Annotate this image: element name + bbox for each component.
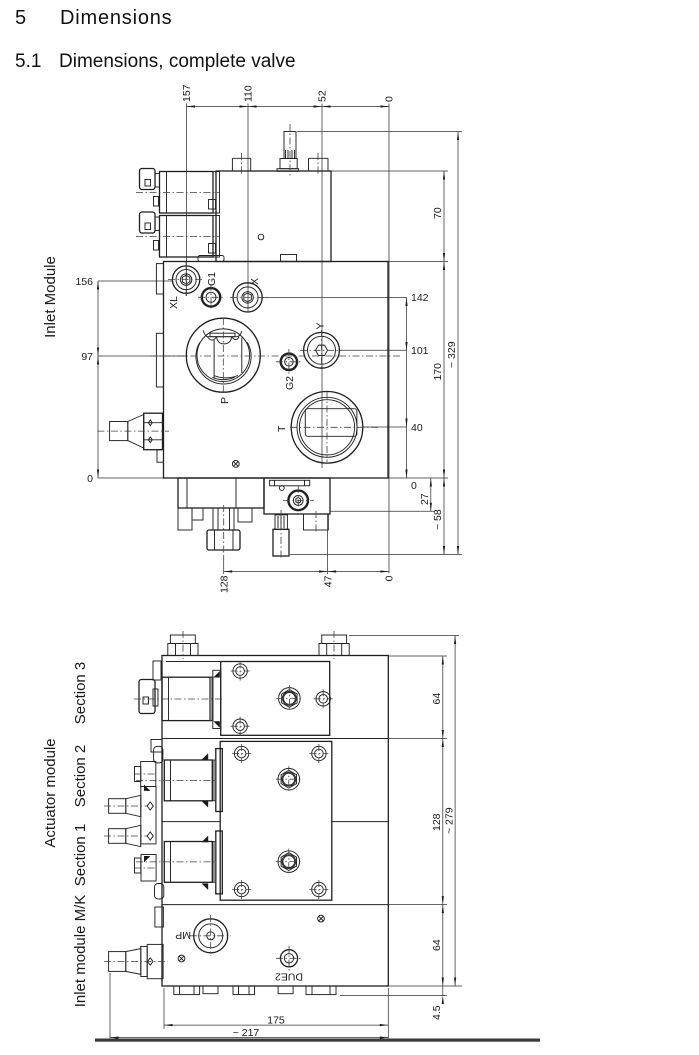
svg-text:Section 3: Section 3 bbox=[72, 662, 89, 725]
svg-text:G2: G2 bbox=[284, 376, 296, 390]
svg-text:MP: MP bbox=[175, 929, 191, 941]
svg-text:64: 64 bbox=[431, 693, 443, 705]
svg-text:~ 279: ~ 279 bbox=[444, 807, 456, 834]
svg-text:Section 2: Section 2 bbox=[72, 745, 89, 808]
svg-text:Inlet module M/K: Inlet module M/K bbox=[72, 895, 89, 1008]
svg-text:70: 70 bbox=[432, 207, 444, 219]
svg-text:170: 170 bbox=[432, 363, 444, 381]
svg-text:0: 0 bbox=[384, 575, 396, 581]
svg-text:0: 0 bbox=[384, 96, 396, 102]
svg-text:64: 64 bbox=[431, 939, 443, 951]
svg-text:52: 52 bbox=[317, 90, 329, 102]
svg-text:47: 47 bbox=[323, 575, 335, 587]
svg-text:157: 157 bbox=[181, 84, 193, 102]
svg-text:G1: G1 bbox=[206, 272, 218, 286]
svg-text:128: 128 bbox=[219, 575, 231, 593]
svg-text:Actuator module: Actuator module bbox=[42, 738, 59, 847]
svg-text:Y: Y bbox=[315, 322, 327, 329]
svg-text:0: 0 bbox=[87, 473, 93, 485]
svg-text:T: T bbox=[276, 425, 288, 432]
svg-text:175: 175 bbox=[267, 1015, 285, 1027]
svg-text:110: 110 bbox=[243, 85, 255, 102]
svg-text:~ 58: ~ 58 bbox=[432, 509, 444, 530]
svg-text:DUE2: DUE2 bbox=[275, 971, 303, 983]
svg-text:~ 217: ~ 217 bbox=[233, 1027, 260, 1039]
svg-text:X: X bbox=[249, 278, 261, 285]
svg-text:Section 1: Section 1 bbox=[72, 824, 89, 887]
svg-text:27: 27 bbox=[419, 493, 431, 505]
svg-text:4.5: 4.5 bbox=[431, 1005, 443, 1020]
svg-text:XL: XL bbox=[168, 296, 180, 309]
svg-text:142: 142 bbox=[411, 292, 429, 304]
svg-text:0: 0 bbox=[411, 480, 417, 492]
svg-text:P: P bbox=[219, 397, 231, 404]
svg-text:101: 101 bbox=[411, 345, 429, 357]
svg-text:Inlet Module: Inlet Module bbox=[42, 256, 59, 338]
svg-text:128: 128 bbox=[431, 813, 443, 831]
svg-text:40: 40 bbox=[411, 422, 423, 434]
svg-text:~ 329: ~ 329 bbox=[446, 341, 458, 368]
svg-text:97: 97 bbox=[81, 351, 93, 363]
svg-text:156: 156 bbox=[75, 276, 93, 288]
